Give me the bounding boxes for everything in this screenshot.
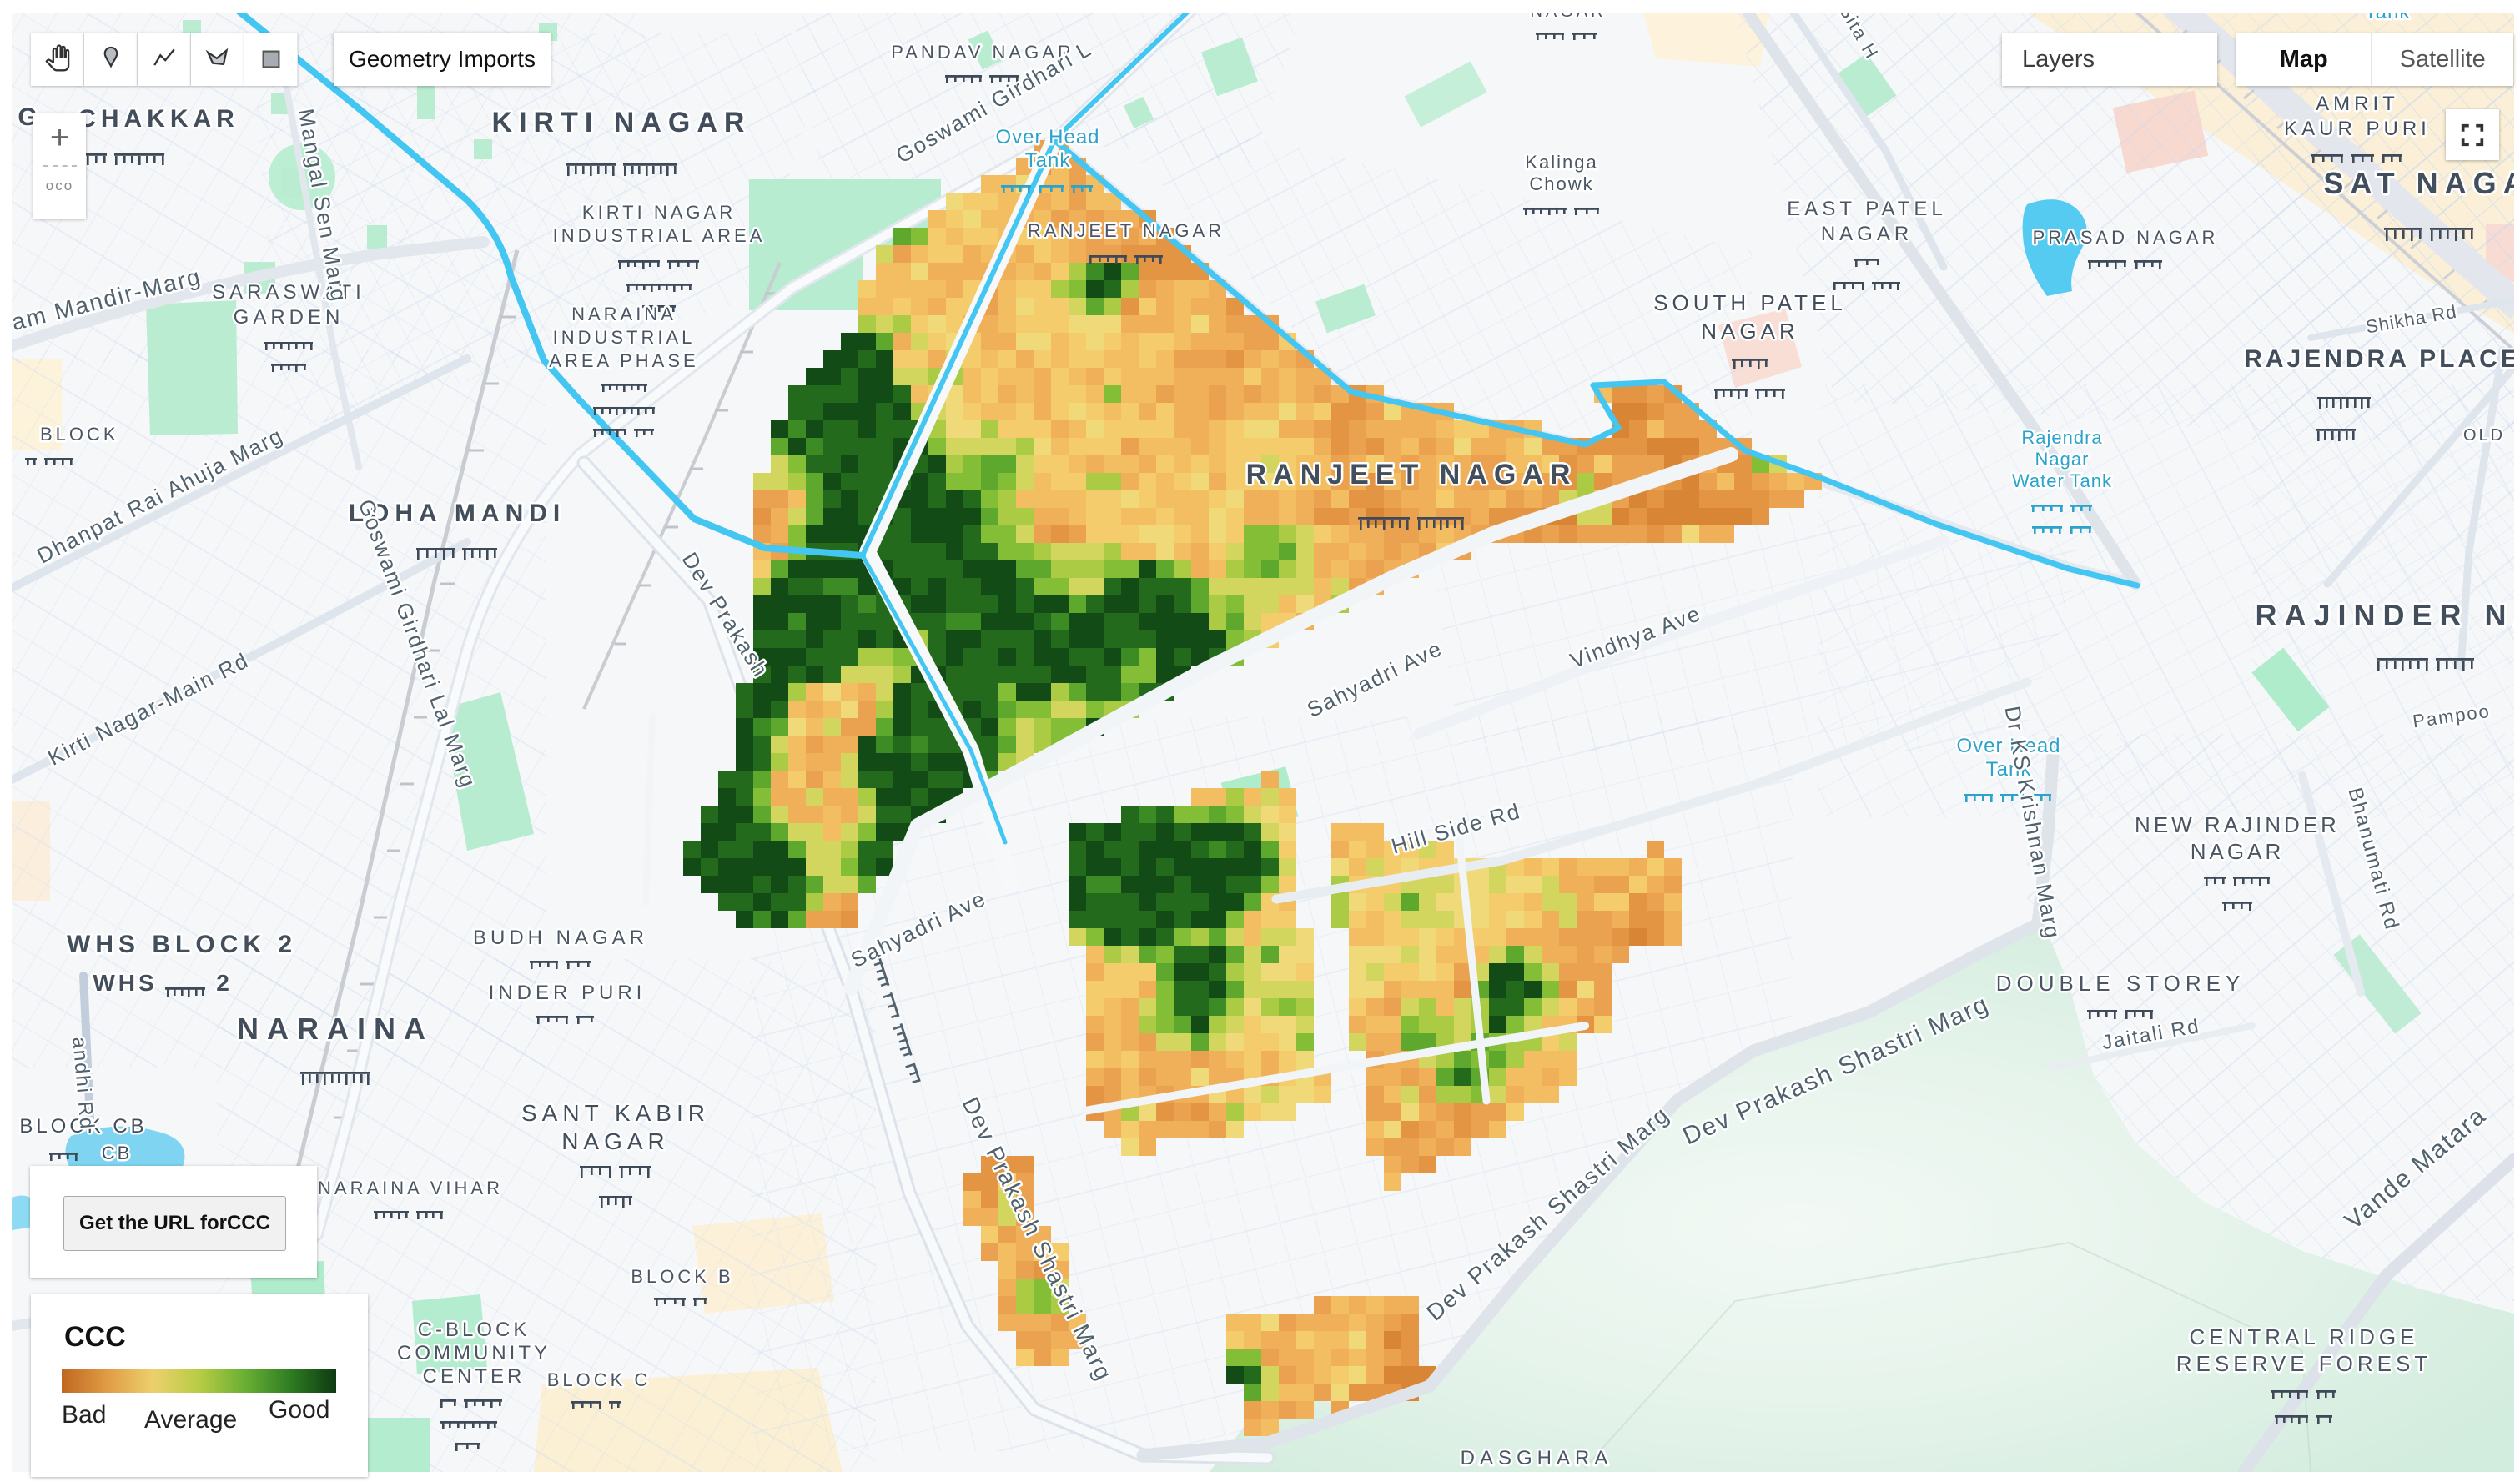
svg-text:SAT NAGA: SAT NAGA [2323,166,2514,200]
svg-text:WHS BLOCK 2: WHS BLOCK 2 [67,931,297,958]
svg-text:Pampoo: Pampoo [2412,701,2492,732]
svg-text:CENTER: CENTER [423,1365,526,1388]
svg-text:BLOCK C: BLOCK C [547,1369,651,1390]
svg-text:Hill Side Rd: Hill Side Rd [1389,798,1524,859]
svg-text:Water Tank: Water Tank [2012,470,2112,491]
svg-text:AREA PHASE: AREA PHASE [549,350,698,371]
svg-text:Chowk: Chowk [1529,173,1593,194]
svg-text:INDUSTRIAL AREA: INDUSTRIAL AREA [553,225,766,246]
svg-text:GARDEN: GARDEN [234,306,345,329]
svg-text:Bhanumati Rd: Bhanumati Rd [2343,786,2403,933]
svg-text:Vindhya Ave: Vindhya Ave [1567,600,1704,673]
svg-text:BUDH NAGAR: BUDH NAGAR [473,927,648,949]
svg-text:Dev Prakash: Dev Prakash [677,548,774,682]
svg-text:Goswami Girdhari Lal Marg: Goswami Girdhari Lal Marg [354,496,482,792]
svg-text:Nagar: Nagar [2035,449,2090,470]
svg-text:NAGAR: NAGAR [2191,839,2284,864]
svg-text:SANT KABIR: SANT KABIR [521,1100,710,1126]
svg-text:KIRTI NAGAR: KIRTI NAGAR [582,202,736,223]
svg-text:Sita H: Sita H [1835,13,1884,63]
svg-text:Jaitali Rd: Jaitali Rd [2100,1015,2202,1054]
svg-text:RESERVE FOREST: RESERVE FOREST [2176,1351,2432,1376]
svg-text:NAGAR: NAGAR [1701,319,1798,344]
svg-text:Sahyadri Ave: Sahyadri Ave [847,886,990,972]
svg-text:RAJENDRA PLACE: RAJENDRA PLACE [2244,345,2514,373]
svg-text:Dev Prakash Shastri Marg: Dev Prakash Shastri Marg [1421,1101,1674,1325]
svg-text:Sahyadri Ave: Sahyadri Ave [1303,636,1446,722]
svg-text:Tank: Tank [1025,149,1071,172]
svg-text:Dev Prakash Shastri Marg: Dev Prakash Shastri Marg [1679,990,1994,1150]
svg-text:RANJEET NAGAR: RANJEET NAGAR [1028,220,1225,241]
svg-text:Kirti Nagar-Main Rd: Kirti Nagar-Main Rd [43,647,253,771]
svg-text:NAGAR: NAGAR [561,1128,670,1154]
svg-text:AMRIT: AMRIT [2316,93,2399,115]
svg-text:RAJINDER NAGA: RAJINDER NAGA [2255,598,2514,632]
svg-text:Shikha Rd: Shikha Rd [2364,301,2458,338]
svg-text:PRASAD NAGAR: PRASAD NAGAR [2033,227,2219,248]
svg-text:EAST PATEL: EAST PATEL [1787,198,1946,220]
svg-text:Rajendra: Rajendra [2021,427,2102,448]
svg-text:am Mandir-Marg: am Mandir-Marg [12,264,204,336]
svg-text:WHS: WHS [93,970,157,996]
svg-text:DASGHARA: DASGHARA [1461,1447,1613,1469]
svg-text:NARAINA: NARAINA [571,304,677,324]
svg-text:CENTRAL RIDGE: CENTRAL RIDGE [2190,1324,2419,1349]
svg-text:NARAINA: NARAINA [237,1012,434,1046]
svg-text:COMMUNITY: COMMUNITY [397,1342,551,1364]
svg-text:KIRTI NAGAR: KIRTI NAGAR [492,107,752,138]
svg-text:INDER PURI: INDER PURI [489,982,646,1004]
svg-text:Vande Matara: Vande Matara [2340,1102,2492,1235]
svg-text:Mangal Sen Marg: Mangal Sen Marg [294,107,352,304]
svg-text:Kalinga: Kalinga [1525,152,1597,173]
svg-text:Tank: Tank [2365,13,2411,23]
svg-text:2: 2 [216,970,231,996]
svg-text:INDUSTRIAL: INDUSTRIAL [553,327,696,348]
svg-text:NARAINA VIHAR: NARAINA VIHAR [318,1178,503,1198]
svg-text:NEW RAJINDER: NEW RAJINDER [2135,812,2340,837]
svg-text:NAGAR: NAGAR [1530,13,1606,21]
svg-text:BLOCK: BLOCK [40,424,119,445]
svg-text:KAUR PURI: KAUR PURI [2284,118,2431,140]
svg-text:SOUTH PATEL: SOUTH PATEL [1653,290,1847,315]
svg-text:Over Head: Over Head [995,126,1099,148]
svg-text:DOUBLE STOREY: DOUBLE STOREY [1996,971,2246,996]
svg-text:RANJEET NAGAR: RANJEET NAGAR [1246,459,1577,490]
svg-text:NAGAR: NAGAR [1821,223,1913,245]
svg-text:CB: CB [102,1143,133,1163]
svg-text:BLOCK B: BLOCK B [631,1266,733,1287]
svg-text:Dev Prakash Shastri Marg: Dev Prakash Shastri Marg [957,1093,1117,1385]
svg-text:C-BLOCK: C-BLOCK [418,1319,531,1341]
svg-text:OLD: OLD [2463,426,2505,445]
svg-text:CHAKKAR: CHAKKAR [78,105,239,133]
